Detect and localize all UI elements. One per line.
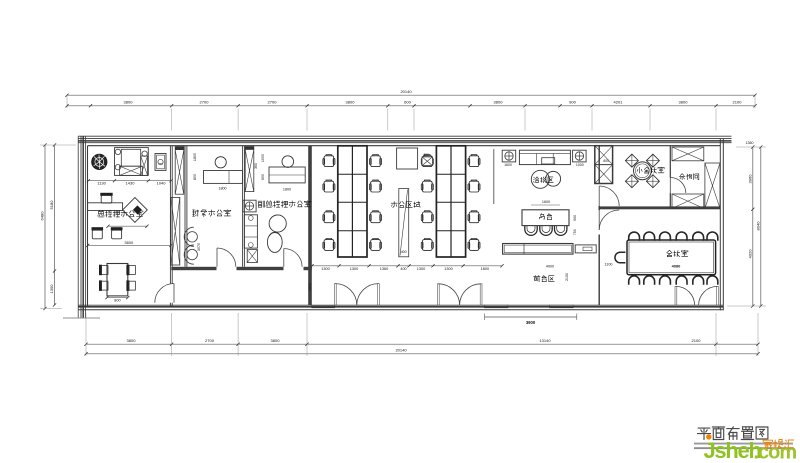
svg-text:4000: 4000 (546, 265, 554, 269)
svg-text:2700: 2700 (268, 99, 278, 104)
svg-text:3800: 3800 (127, 338, 137, 343)
svg-text:600: 600 (603, 159, 609, 163)
svg-text:1300: 1300 (350, 267, 358, 271)
svg-text:2700: 2700 (205, 338, 215, 343)
svg-text:20140: 20140 (395, 348, 407, 353)
svg-text:360: 360 (254, 163, 258, 169)
svg-text:1000: 1000 (576, 163, 584, 167)
svg-text:1300: 1300 (49, 284, 54, 294)
svg-text:1360: 1360 (380, 267, 388, 271)
svg-text:600: 600 (261, 174, 265, 180)
svg-text:2100: 2100 (733, 99, 743, 104)
svg-text:1360: 1360 (746, 141, 754, 145)
svg-text:3800: 3800 (679, 99, 689, 104)
svg-text:2100: 2100 (565, 273, 569, 281)
svg-text:1300: 1300 (444, 267, 452, 271)
svg-text:13140: 13140 (539, 338, 551, 343)
svg-text:4080: 4080 (672, 264, 681, 269)
svg-text:800: 800 (193, 174, 197, 180)
svg-text:1800: 1800 (308, 283, 312, 291)
svg-text:1000: 1000 (261, 154, 265, 162)
svg-text:1040: 1040 (157, 181, 167, 186)
svg-text:400: 400 (423, 153, 429, 157)
svg-text:1300: 1300 (321, 267, 329, 271)
svg-text:3960: 3960 (747, 174, 752, 184)
svg-text:1430: 1430 (126, 181, 136, 186)
svg-text:5180: 5180 (49, 200, 54, 210)
svg-text:1800: 1800 (218, 187, 226, 191)
svg-text:1100: 1100 (605, 262, 613, 266)
svg-text:4201: 4201 (614, 99, 624, 104)
svg-text:1800: 1800 (283, 188, 291, 192)
svg-text:900: 900 (569, 99, 576, 104)
svg-text:3800: 3800 (271, 338, 281, 343)
svg-text:3070: 3070 (197, 243, 201, 251)
svg-text:3600: 3600 (124, 240, 134, 245)
svg-text:1130: 1130 (97, 181, 106, 186)
svg-text:1600: 1600 (542, 200, 550, 204)
svg-text:4020: 4020 (747, 249, 752, 259)
svg-text:1800: 1800 (193, 153, 197, 161)
svg-text:400: 400 (400, 267, 406, 271)
svg-text:3800: 3800 (124, 99, 134, 104)
svg-text:600: 600 (573, 215, 577, 221)
svg-text:400: 400 (401, 250, 407, 254)
svg-text:2100: 2100 (692, 338, 702, 343)
svg-text:3800: 3800 (346, 99, 356, 104)
svg-text:20140: 20140 (400, 89, 412, 94)
svg-text:6480: 6480 (40, 211, 45, 221)
svg-text:3900: 3900 (526, 320, 536, 325)
svg-text:1600: 1600 (504, 163, 512, 167)
svg-text:8040: 8040 (755, 221, 760, 231)
svg-text:3800: 3800 (494, 99, 504, 104)
svg-text:800: 800 (114, 298, 120, 302)
svg-text:600: 600 (404, 99, 411, 104)
svg-text:1800: 1800 (481, 267, 489, 271)
svg-text:750: 750 (573, 229, 577, 235)
svg-text:2700: 2700 (200, 99, 210, 104)
svg-text:1300: 1300 (417, 267, 425, 271)
